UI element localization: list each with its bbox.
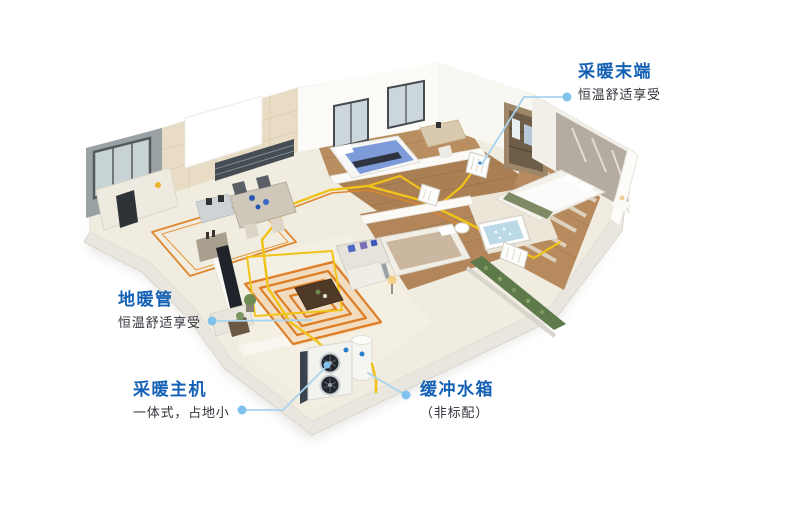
callout-subtitle: 恒温舒适享受 bbox=[578, 88, 661, 102]
callout-dot-main-unit-end bbox=[324, 362, 331, 369]
callout-title: 地暖管 bbox=[118, 291, 201, 310]
callout-subtitle: 恒温舒适享受 bbox=[118, 316, 201, 330]
leader-line-floor-pipe bbox=[218, 320, 312, 321]
plant bbox=[244, 294, 256, 306]
callout-subtitle: （非标配） bbox=[420, 406, 494, 420]
callout-dot-buffer-tank bbox=[402, 391, 411, 400]
callout-dot-main-unit bbox=[238, 406, 247, 415]
callout-title: 采暖主机 bbox=[133, 381, 230, 400]
callout-dot-heating-terminal bbox=[563, 93, 572, 102]
floorplan-illustration bbox=[0, 0, 800, 516]
callout-title: 缓冲水箱 bbox=[420, 381, 494, 400]
heating-system-diagram: 采暖末端 恒温舒适享受 地暖管 恒温舒适享受 采暖主机 一体式，占地小 缓冲水箱… bbox=[0, 0, 800, 516]
callout-floor-heating-pipe: 地暖管 恒温舒适享受 bbox=[118, 291, 201, 330]
callout-title: 采暖末端 bbox=[578, 63, 661, 82]
callout-heating-terminal: 采暖末端 恒温舒适享受 bbox=[578, 63, 661, 102]
callout-subtitle: 一体式，占地小 bbox=[133, 406, 230, 420]
callout-heating-main-unit: 采暖主机 一体式，占地小 bbox=[133, 381, 230, 420]
callout-buffer-tank: 缓冲水箱 （非标配） bbox=[420, 381, 494, 420]
heat-pump-unit bbox=[300, 341, 352, 404]
toilet bbox=[455, 223, 469, 233]
callout-dot-floor-pipe bbox=[208, 317, 217, 326]
